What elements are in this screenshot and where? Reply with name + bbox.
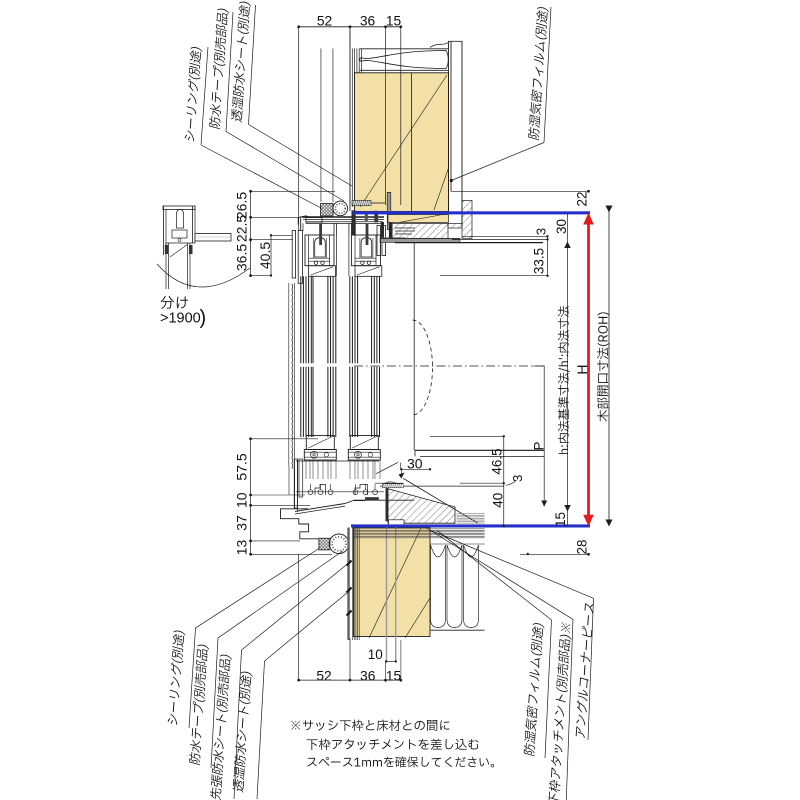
svg-text:30: 30 [407, 456, 423, 472]
svg-text:46.5: 46.5 [490, 448, 505, 474]
svg-text:15: 15 [553, 512, 568, 527]
svg-text:15: 15 [386, 14, 402, 29]
svg-text:3: 3 [510, 475, 525, 482]
svg-text:10: 10 [234, 492, 250, 508]
svg-text:40.5: 40.5 [257, 242, 273, 269]
svg-text:52: 52 [316, 668, 331, 683]
svg-text:3: 3 [533, 228, 548, 235]
svg-text:36: 36 [360, 14, 376, 29]
svg-text:10: 10 [368, 647, 383, 662]
svg-text:28: 28 [574, 539, 589, 554]
svg-text:H: H [574, 364, 590, 374]
svg-text:40: 40 [491, 493, 506, 508]
svg-text:>1900: >1900 [160, 311, 201, 327]
svg-text:22: 22 [574, 191, 589, 206]
svg-text:22.5: 22.5 [234, 215, 250, 242]
svg-text:36: 36 [360, 668, 376, 683]
svg-text:37: 37 [234, 515, 250, 531]
svg-text:33.5: 33.5 [532, 248, 547, 274]
svg-text:P: P [532, 441, 547, 450]
svg-text:): ) [200, 307, 207, 329]
svg-text:57.5: 57.5 [234, 453, 250, 480]
svg-text:30: 30 [554, 219, 569, 234]
svg-text:13: 13 [234, 540, 250, 556]
svg-text:15: 15 [386, 668, 402, 683]
svg-text:36.5: 36.5 [234, 244, 250, 271]
svg-text:52: 52 [317, 14, 332, 29]
